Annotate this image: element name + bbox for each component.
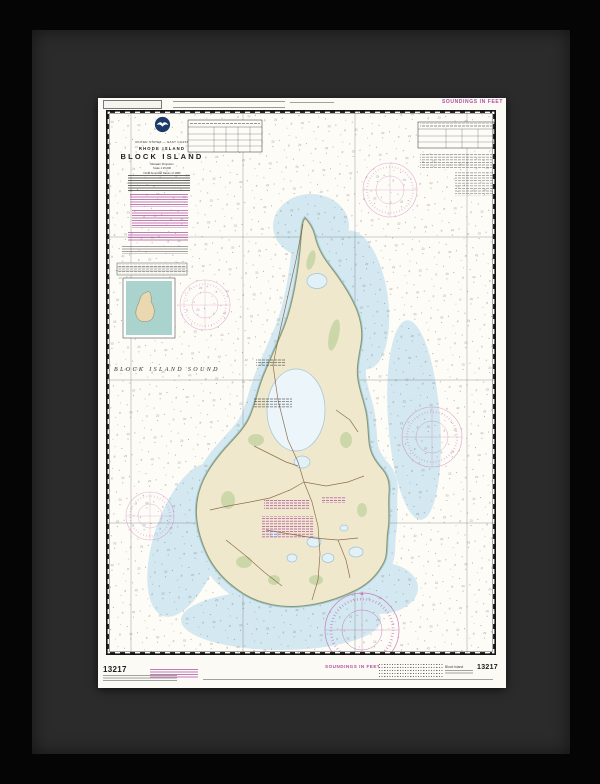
top-scale-bars xyxy=(173,101,285,108)
chart-notes-black xyxy=(128,175,190,191)
chart-number-bottom-right: 13217 xyxy=(477,664,498,671)
chart-notes-magenta-3 xyxy=(128,232,188,242)
chart-notes-magenta-1 xyxy=(130,194,188,207)
top-center-note xyxy=(290,102,334,104)
chart-number-bottom-left: 13217 xyxy=(103,665,127,674)
projection-line: Mercator Projection xyxy=(116,163,208,166)
edition-label: Block Island xyxy=(445,665,463,669)
state-line: RHODE ISLAND xyxy=(116,146,208,151)
country-line: UNITED STATES — EAST COAST xyxy=(116,140,208,144)
chart-title: BLOCK ISLAND xyxy=(116,152,208,161)
great-salt-pond xyxy=(267,369,325,451)
chart-notes-magenta-2 xyxy=(132,210,188,228)
top-left-label-box xyxy=(103,100,162,109)
soundings-in-feet-bottom-label: SOUNDINGS IN FEET xyxy=(325,664,380,669)
chart-paper: SOUNDINGS IN FEET 23 8 xyxy=(98,98,506,688)
sea-name-label: BLOCK ISLAND SOUND xyxy=(114,367,220,373)
bottom-full-width-note xyxy=(203,679,493,681)
map-area: 23 8 xyxy=(106,110,496,655)
edition-subtext xyxy=(445,670,473,674)
chart-title-block: UNITED STATES — EAST COAST RHODE ISLAND … xyxy=(116,116,208,175)
soundings-in-feet-top-label: SOUNDINGS IN FEET xyxy=(442,99,503,105)
framed-chart-photo: SOUNDINGS IN FEET 23 8 xyxy=(0,0,600,784)
bottom-magenta-note xyxy=(150,669,198,678)
noaa-emblem-icon xyxy=(154,116,171,138)
sachem-pond xyxy=(307,274,327,289)
compass-rose xyxy=(126,492,174,540)
scale-line: Scale 1:15,000 xyxy=(116,167,208,170)
chart-notes-small xyxy=(122,246,188,254)
compass-rose xyxy=(363,163,417,217)
compass-rose xyxy=(180,280,230,330)
bottom-stamp-block xyxy=(379,664,443,677)
